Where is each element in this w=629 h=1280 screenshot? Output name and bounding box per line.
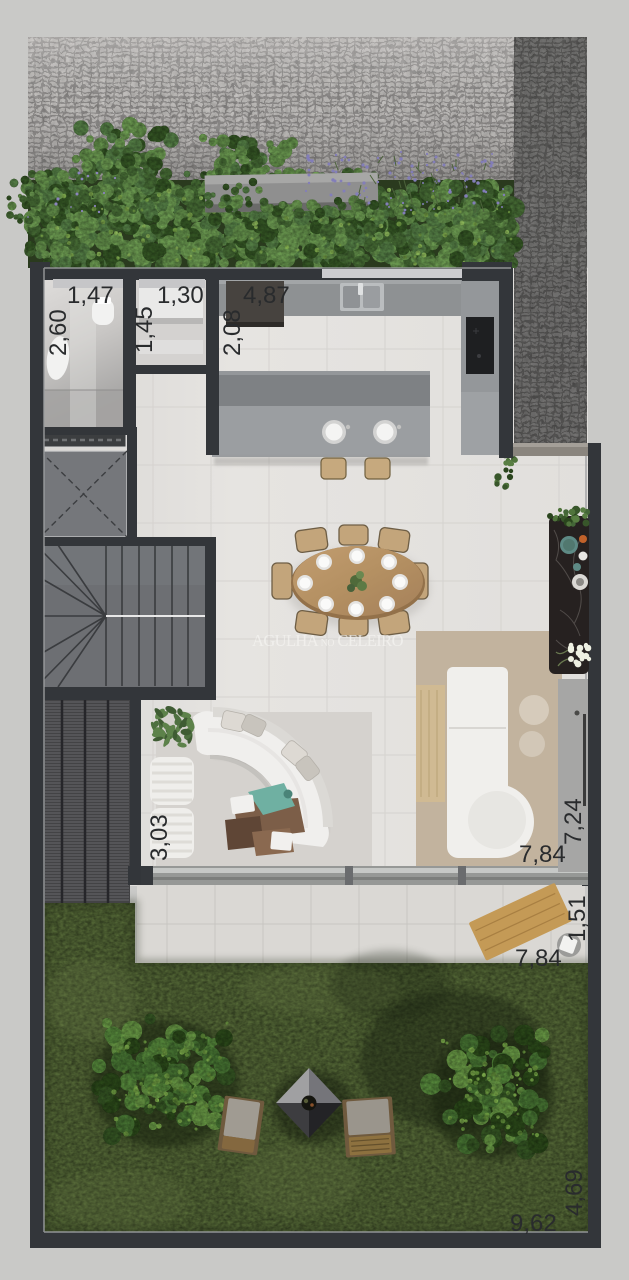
svg-text:7,84: 7,84 (515, 945, 562, 972)
svg-text:1,30: 1,30 (157, 282, 204, 309)
svg-text:3,03: 3,03 (146, 814, 173, 861)
svg-text:2,60: 2,60 (45, 309, 72, 356)
svg-text:1,45: 1,45 (131, 306, 158, 353)
svg-text:1,47: 1,47 (67, 282, 114, 309)
svg-text:4,87: 4,87 (243, 282, 290, 309)
svg-text:4,69: 4,69 (561, 1169, 588, 1216)
svg-text:9,62: 9,62 (510, 1210, 557, 1237)
svg-text:1,51: 1,51 (564, 895, 591, 942)
svg-text:7,84: 7,84 (519, 841, 566, 868)
svg-text:7,24: 7,24 (560, 798, 587, 845)
svg-text:2,08: 2,08 (219, 309, 246, 356)
